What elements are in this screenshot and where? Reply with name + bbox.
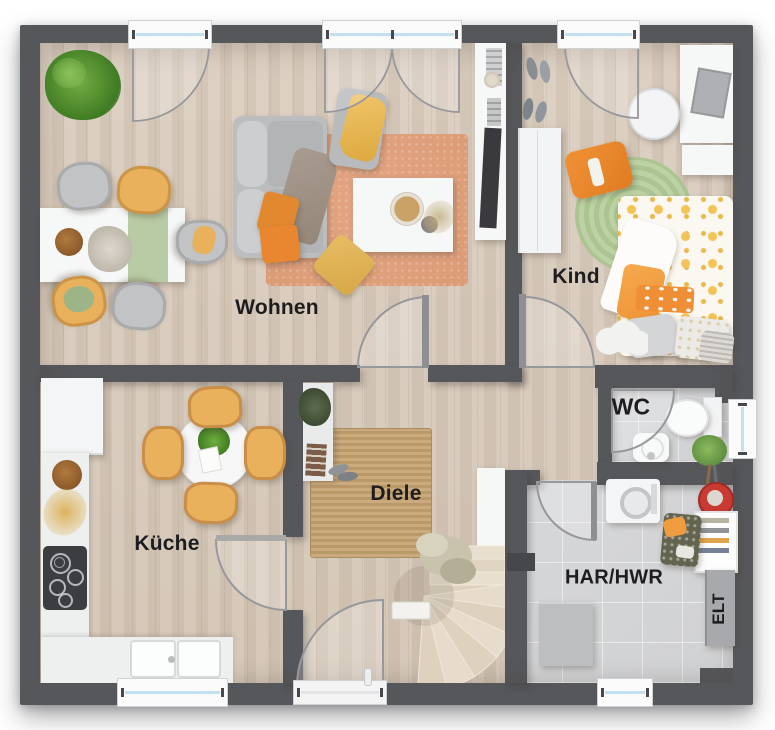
stair-wall-niche [507, 553, 535, 571]
burner-1-inner [54, 557, 65, 568]
window-wc [728, 399, 757, 459]
palm-plant-highlight [52, 58, 86, 88]
window-glass [741, 407, 744, 451]
entrance-door-leaf [301, 691, 379, 694]
sink-faucet [168, 656, 175, 663]
shelf-item-3 [699, 538, 729, 543]
hall-cabinet [477, 468, 505, 563]
window-tick [738, 403, 747, 406]
shelf-item-1 [699, 518, 729, 523]
book-stack-2 [487, 98, 501, 126]
kitchen-decor-bowl [52, 460, 82, 490]
window-utility [597, 678, 653, 707]
hall-books [305, 443, 327, 476]
shelf-item-4 [699, 548, 729, 553]
kitchen-chair-top [187, 385, 242, 429]
entrance-door-handle [364, 668, 372, 686]
burner-4 [58, 593, 73, 608]
window-kitchen [117, 678, 228, 707]
dining-chair-yellow-top [115, 164, 172, 216]
shelf-item-2 [699, 528, 729, 533]
window-tick [297, 688, 300, 697]
window-tick [455, 30, 458, 39]
room-label-wc: WC [612, 394, 651, 421]
washing-machine-panel [651, 484, 657, 514]
window-tick [646, 688, 649, 697]
sofa-pillow-dark-orange [259, 224, 301, 264]
window-tick [132, 30, 135, 39]
room-label-har-hwr: HAR/HWR [565, 567, 663, 590]
wall-kitchen-hall-lower [283, 610, 303, 683]
wc-sink-tap [647, 452, 655, 460]
toilet-bowl [665, 399, 709, 437]
window-tick [601, 688, 604, 697]
room-label-elt: ELT [709, 593, 729, 624]
decor-bowl [55, 228, 83, 256]
sofa-back-cushion-1 [237, 121, 267, 187]
window-tick [205, 30, 208, 39]
bed-pillow-striped [698, 330, 735, 364]
kitchen-chair-right [244, 426, 286, 480]
kitchen-chair-left [142, 426, 184, 480]
window-tick [738, 452, 747, 455]
window-tick [221, 688, 224, 697]
hall-plant [299, 388, 331, 426]
window-tick [561, 30, 564, 39]
wardrobe-door-split [537, 130, 538, 251]
fridge-tall-unit [41, 378, 103, 455]
dried-bouquet [88, 226, 132, 272]
decor-basket [484, 72, 500, 88]
kitchen-chair-bottom [183, 481, 238, 525]
wall-wc-corridor [598, 385, 612, 462]
dining-table-runner [128, 208, 168, 282]
wc-plant [692, 435, 727, 466]
desk-cabinet [682, 145, 733, 175]
window-tick [380, 688, 383, 697]
bed-pillow-orange-dots [635, 285, 694, 314]
utility-appliance-box [539, 602, 593, 666]
window-mullion [391, 30, 394, 39]
washing-machine-door [620, 487, 652, 519]
wall-child-wc [595, 365, 733, 388]
wardrobe [518, 128, 561, 253]
window-child [557, 20, 640, 49]
window-tick [326, 30, 329, 39]
wall-living-hall [428, 365, 522, 382]
window-living-1 [128, 20, 212, 49]
sink-basin-right [177, 640, 221, 678]
window-living-2-double [322, 20, 462, 49]
entrance-door [293, 680, 387, 705]
window-tick [121, 688, 124, 697]
window-glass [605, 691, 645, 694]
coffee-table-tray [390, 192, 424, 226]
palm-plant [45, 50, 121, 120]
window-glass [125, 691, 220, 694]
red-bucket-inner [707, 490, 723, 506]
room-label-diele: Diele [370, 482, 421, 506]
utility-corner-pillar [700, 668, 733, 683]
window-tick [633, 30, 636, 39]
room-label-kueche: Küche [134, 532, 199, 556]
room-label-wohnen: Wohnen [235, 296, 319, 320]
wall-hall-utility [505, 470, 527, 683]
window-glass [136, 33, 204, 36]
laundry-cloth-white [675, 545, 694, 559]
floor-plan: Wohnen Kind Küche Diele WC HAR/HWR ELT [0, 0, 775, 730]
window-glass [565, 33, 632, 36]
room-label-kind: Kind [552, 265, 599, 289]
cloud-rug [596, 318, 648, 360]
burner-2 [67, 569, 84, 586]
